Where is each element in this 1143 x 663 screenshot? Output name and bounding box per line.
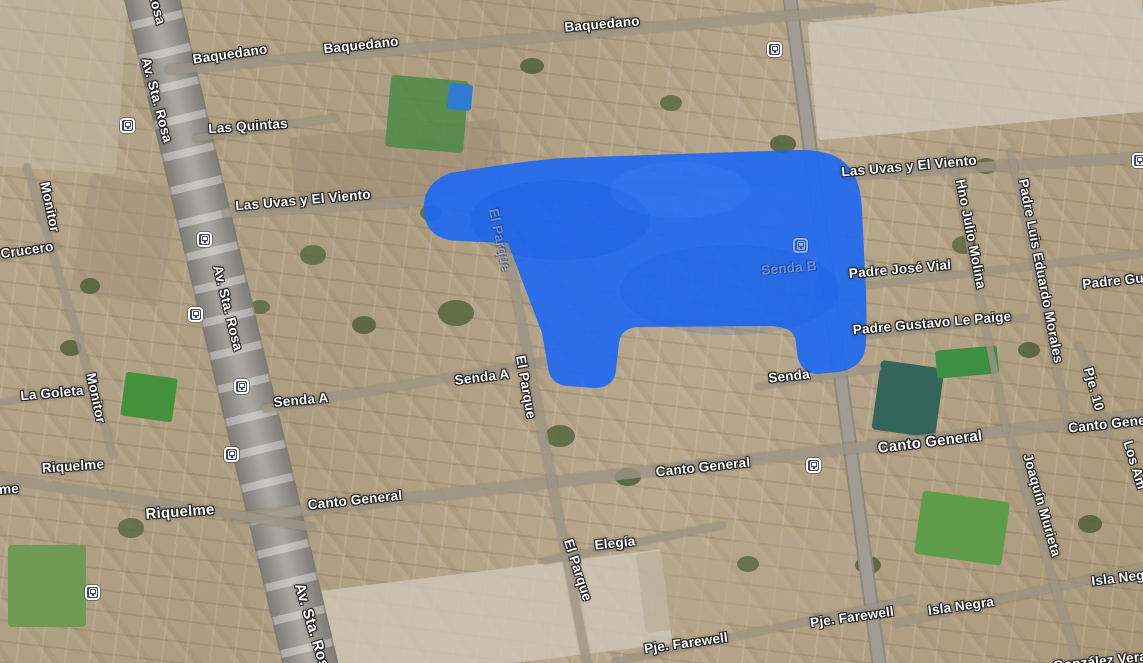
terrain-patch <box>438 300 474 326</box>
terrain-patch <box>300 245 326 265</box>
bus-stop-icon[interactable] <box>806 458 821 473</box>
street-label: Crucero <box>0 239 54 261</box>
street-label: Padre Luis Eduardo Morales <box>1016 178 1067 365</box>
terrain-patch <box>118 518 144 538</box>
bus-icon <box>192 310 200 319</box>
street-label: Monitor <box>83 372 108 425</box>
terrain-patch <box>120 372 178 423</box>
terrain-patch <box>420 205 442 221</box>
bus-icon <box>810 461 818 470</box>
bus-stop-icon[interactable] <box>767 42 782 57</box>
bus-stop-icon[interactable] <box>120 118 135 133</box>
bus-icon <box>771 45 779 54</box>
street-label: Canto General <box>655 455 751 480</box>
bus-icon <box>1136 156 1143 165</box>
bus-stop-icon[interactable] <box>793 238 808 253</box>
bus-stop-icon[interactable] <box>197 232 212 247</box>
bus-stop-icon[interactable] <box>234 379 249 394</box>
terrain-patch <box>520 58 544 74</box>
bus-icon <box>228 450 236 459</box>
terrain-patch <box>352 316 376 334</box>
street-label: Isla Neg <box>1091 567 1143 588</box>
street-label: Senda B <box>761 258 818 278</box>
street-label: Senda <box>768 366 811 385</box>
bus-stop-icon[interactable] <box>224 447 239 462</box>
street-label: La Goleta <box>20 383 84 403</box>
bus-icon <box>238 382 246 391</box>
terrain-patch <box>284 549 673 663</box>
street-label: Las Quintas <box>208 116 288 137</box>
terrain-patch <box>1078 515 1102 533</box>
street-label: González Vera <box>1052 649 1143 663</box>
street-road <box>1006 437 1084 663</box>
terrain-patch <box>914 490 1010 566</box>
bus-stop-icon[interactable] <box>85 585 100 600</box>
terrain-patch <box>1018 342 1040 358</box>
terrain-patch <box>0 0 128 174</box>
bus-icon <box>89 588 97 597</box>
satellite-map-canvas[interactable]: BaquedanoBaquedanoBaquedanoLas QuintasLa… <box>0 0 1143 663</box>
street-label: Padre Gu <box>1082 270 1143 291</box>
terrain-patch <box>80 278 100 294</box>
street-label: Isla Negra <box>927 594 995 618</box>
terrain-patch <box>871 360 944 438</box>
street-label: Riquelme <box>41 456 104 475</box>
terrain-patch <box>737 556 759 572</box>
bus-icon <box>124 121 132 130</box>
street-label: Senda A <box>273 390 329 410</box>
terrain-patch <box>770 135 796 153</box>
street-label: Pje. 10 <box>1081 366 1107 413</box>
bus-stop-icon[interactable] <box>1132 153 1143 168</box>
street-label: Riquelme <box>145 501 215 523</box>
terrain-patch <box>807 0 1143 140</box>
terrain-patch <box>660 95 682 111</box>
bus-icon <box>797 241 805 250</box>
bus-stop-icon[interactable] <box>188 307 203 322</box>
street-label: Los Am <box>1120 439 1143 491</box>
street-label: Senda A <box>454 366 510 388</box>
terrain-patch <box>447 83 473 111</box>
street-label: Elegía <box>594 533 636 552</box>
terrain-patch <box>8 545 86 627</box>
bus-icon <box>201 235 209 244</box>
street-label: me <box>0 481 19 497</box>
